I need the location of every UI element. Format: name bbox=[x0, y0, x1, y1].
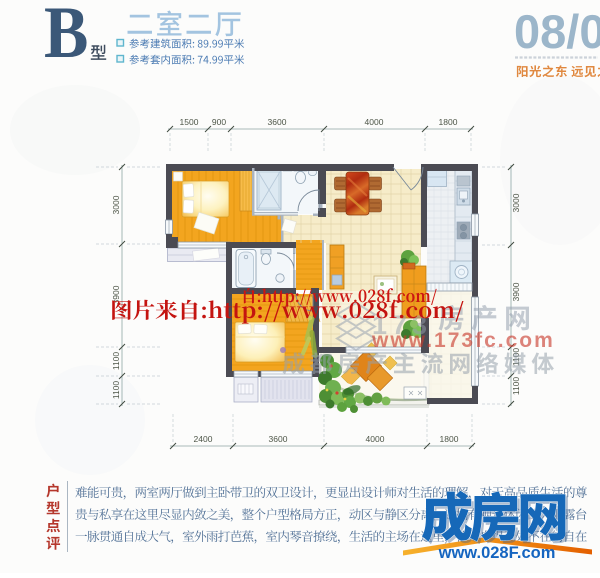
svg-text:3000: 3000 bbox=[111, 195, 121, 214]
svg-text:3900: 3900 bbox=[511, 282, 521, 301]
svg-text:4000: 4000 bbox=[366, 434, 385, 444]
svg-text:1100: 1100 bbox=[111, 381, 121, 400]
svg-text:www.173fc.com: www.173fc.com bbox=[371, 329, 555, 352]
svg-text:900: 900 bbox=[212, 117, 226, 127]
svg-text:2400: 2400 bbox=[194, 434, 213, 444]
svg-text:www.028F.com: www.028F.com bbox=[438, 544, 556, 562]
svg-text:3600: 3600 bbox=[268, 117, 287, 127]
svg-text:1100: 1100 bbox=[111, 352, 121, 371]
svg-text:08/09: 08/09 bbox=[514, 5, 600, 58]
svg-text:1800: 1800 bbox=[440, 434, 459, 444]
svg-text:3000: 3000 bbox=[511, 193, 521, 212]
svg-text:3600: 3600 bbox=[269, 434, 288, 444]
svg-text:1100: 1100 bbox=[511, 377, 521, 396]
svg-text:1500: 1500 bbox=[180, 117, 199, 127]
svg-text:4000: 4000 bbox=[365, 117, 384, 127]
svg-text:B: B bbox=[44, 0, 88, 74]
svg-text:1800: 1800 bbox=[439, 117, 458, 127]
